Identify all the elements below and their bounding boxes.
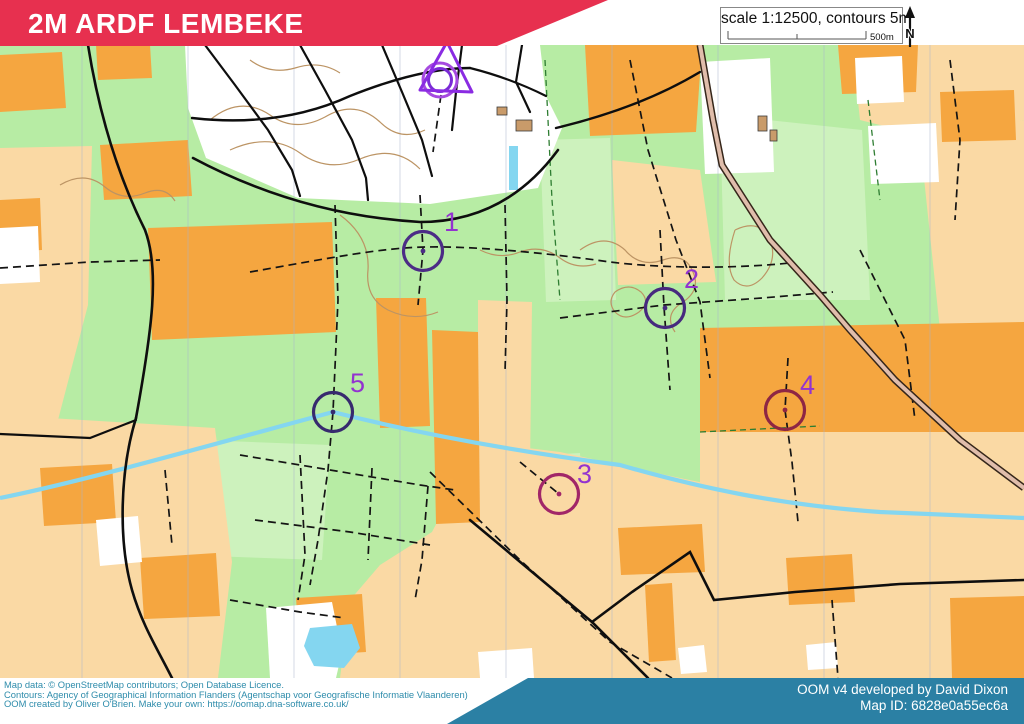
map-page: 12345 2M ARDF LEMBEKE scale 1:12500, con…	[0, 0, 1024, 724]
scale-text: scale 1:12500, contours 5m	[721, 10, 902, 28]
control-number-label: 1	[444, 207, 459, 237]
scale-bar-label: 500m	[870, 32, 894, 42]
credit-oom: OOM v4 developed by David Dixon	[797, 682, 1008, 698]
north-arrow: N	[900, 5, 926, 49]
control-number-label: 4	[800, 370, 815, 400]
control-number-label: 2	[684, 264, 699, 294]
scale-bar: 500m	[721, 28, 904, 42]
control-number-label: 5	[350, 368, 365, 398]
credit-map-id: Map ID: 6828e0a55ec6a	[797, 698, 1008, 714]
north-label: N	[905, 26, 914, 41]
credits: OOM v4 developed by David Dixon Map ID: …	[797, 682, 1008, 714]
scale-box: scale 1:12500, contours 5m 500m	[720, 7, 903, 44]
map-canvas: 12345	[0, 0, 1024, 724]
attribution-line: OOM created by Oliver O'Brien. Make your…	[4, 699, 468, 709]
attribution: Map data: © OpenStreetMap contributors; …	[4, 680, 468, 709]
control-number-label: 3	[577, 459, 592, 489]
map-terrain-layer	[0, 45, 1024, 678]
